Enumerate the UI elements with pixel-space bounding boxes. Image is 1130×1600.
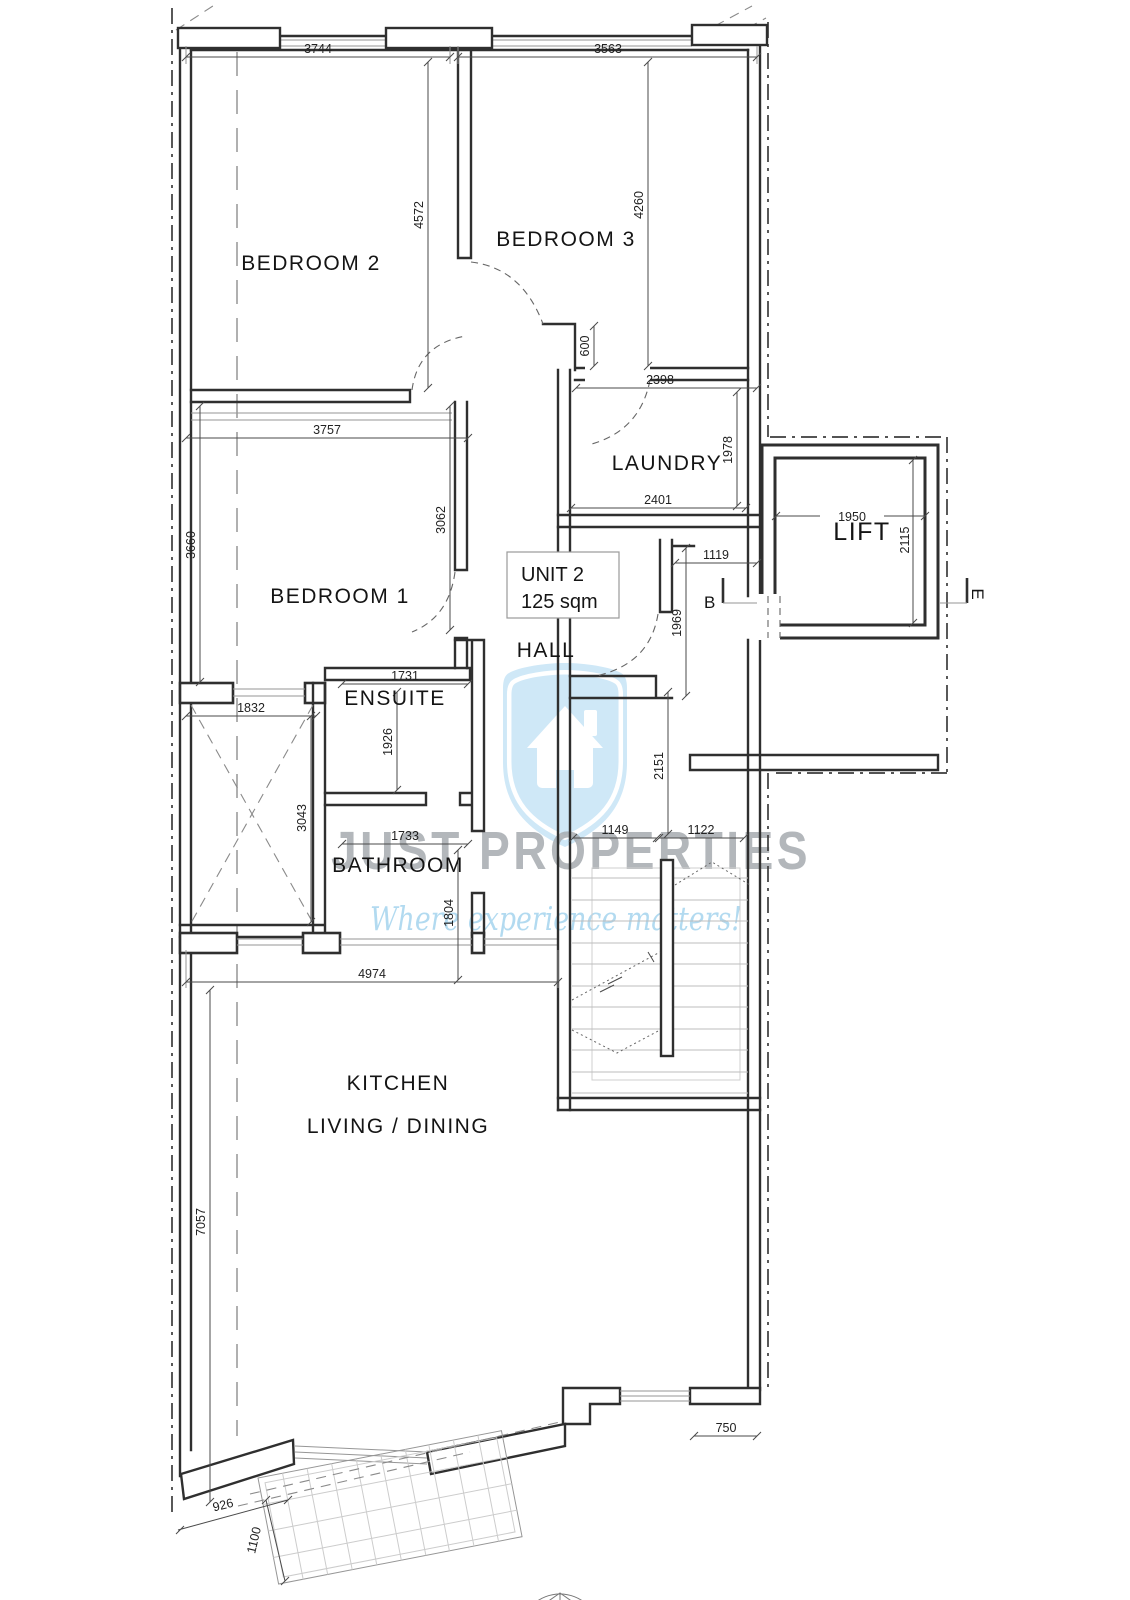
stair-divider-wall (661, 860, 673, 1056)
dim-bedroom1-length: 3660 (184, 402, 204, 686)
floor-plan-drawing: JUST PROPERTIES Where experience matters… (0, 0, 1130, 1600)
svg-text:1100: 1100 (244, 1525, 264, 1554)
stairwell (572, 860, 750, 1093)
dim-hall-void: 2151 (652, 688, 672, 838)
laundry-door-arc (588, 380, 650, 445)
svg-text:2398: 2398 (646, 373, 674, 387)
dim-bedroom1-width: 3757 (182, 423, 472, 442)
watermark-tagline: Where experience matters! (370, 899, 742, 938)
section-markers: B E (704, 578, 987, 612)
entrance-door-arc (596, 614, 658, 676)
room-label-laundry: LAUNDRY (612, 452, 722, 475)
dim-laundry-width: 2401 (567, 493, 750, 512)
dim-bedroom3-length: 4260 (632, 58, 652, 370)
bedroom2-door-arc (412, 336, 466, 390)
dim-terrace-right: 750 (690, 1421, 761, 1440)
svg-text:4572: 4572 (412, 201, 426, 229)
dim-kitchen-width: 4974 (182, 967, 562, 986)
room-label-hall: HALL (517, 639, 576, 662)
section-marker-e: E (968, 588, 987, 599)
window-top-1 (178, 28, 280, 48)
svg-text:1804: 1804 (442, 899, 456, 927)
dim-bedroom1-side: 3062 (434, 402, 454, 634)
section-marker-b: B (704, 593, 715, 612)
svg-text:7057: 7057 (194, 1208, 208, 1236)
svg-text:1731: 1731 (391, 669, 419, 683)
room-label-living: LIVING / DINING (307, 1115, 489, 1138)
dim-kitchen-length: 7057 (194, 986, 214, 1506)
bedroom1-door-arc (412, 572, 455, 632)
svg-text:3757: 3757 (313, 423, 341, 437)
svg-text:2151: 2151 (652, 752, 666, 780)
room-label-bedroom3: BEDROOM 3 (496, 228, 636, 251)
svg-text:1119: 1119 (703, 548, 729, 562)
svg-text:4260: 4260 (632, 191, 646, 219)
bedroom3-door-arc (471, 262, 543, 324)
svg-text:1122: 1122 (688, 823, 715, 837)
svg-text:926: 926 (211, 1496, 235, 1515)
svg-text:1832: 1832 (237, 701, 265, 715)
unit-title: UNIT 2 (521, 564, 584, 586)
dim-bedroom2-length: 4572 (412, 58, 432, 392)
window-top-3 (692, 25, 767, 45)
room-label-bedroom2: BEDROOM 2 (241, 252, 381, 275)
unit-area: 125 sqm (521, 591, 598, 613)
dim-ensuite-width: 1731 (338, 669, 472, 688)
svg-text:1969: 1969 (670, 609, 684, 637)
svg-text:3043: 3043 (295, 804, 309, 832)
room-label-bathroom: BATHROOM (332, 854, 464, 877)
dim-niche: 600 (578, 322, 598, 370)
svg-text:3563: 3563 (594, 42, 622, 56)
svg-text:3660: 3660 (184, 531, 198, 559)
svg-text:2115: 2115 (898, 527, 912, 554)
svg-text:750: 750 (716, 1421, 737, 1435)
dim-terrace-left: 926 (176, 1496, 292, 1534)
floor-plan-page: JUST PROPERTIES Where experience matters… (0, 0, 1130, 1600)
svg-text:2401: 2401 (644, 493, 672, 507)
svg-text:1149: 1149 (602, 823, 629, 837)
room-label-kitchen: KITCHEN (347, 1072, 450, 1095)
svg-text:4974: 4974 (358, 967, 386, 981)
dim-lift-depth: 2115 (898, 456, 917, 627)
room-label-lift: LIFT (833, 518, 890, 546)
window-top-2 (386, 28, 492, 48)
unit-label-box: UNIT 2 125 sqm (507, 552, 619, 618)
svg-text:1733: 1733 (391, 829, 419, 843)
svg-text:1926: 1926 (381, 728, 395, 756)
room-label-bedroom1: BEDROOM 1 (270, 585, 410, 608)
compass-icon (520, 1593, 600, 1600)
svg-text:600: 600 (578, 336, 592, 357)
svg-text:1978: 1978 (721, 436, 735, 464)
dim-laundry-length: 1978 (721, 388, 741, 510)
room-label-ensuite: ENSUITE (344, 687, 446, 710)
svg-text:3062: 3062 (434, 506, 448, 534)
svg-text:3744: 3744 (304, 42, 332, 56)
